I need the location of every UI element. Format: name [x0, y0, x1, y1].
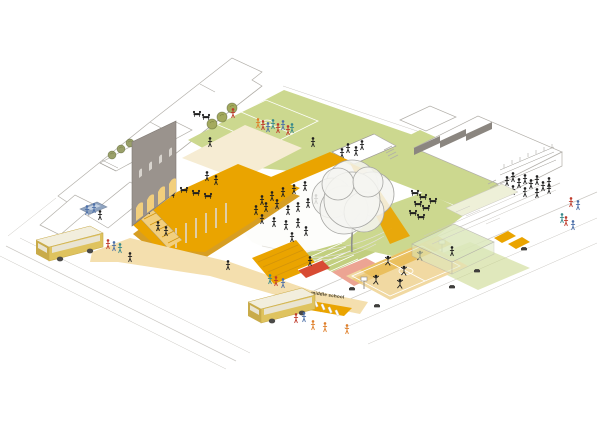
shrub-icon — [227, 103, 237, 113]
site-plan-svg: middle school — [0, 0, 600, 426]
bus2-wheel-front — [269, 319, 275, 324]
person-icon — [345, 324, 348, 334]
shrub-icon — [217, 112, 227, 122]
axonometric-site-illustration: middle school — [0, 0, 600, 426]
person-icon — [529, 179, 532, 189]
school-bus-2 — [248, 288, 315, 323]
person-icon — [547, 184, 550, 194]
amber-patch-1 — [494, 231, 516, 243]
bench-icon — [449, 285, 455, 288]
person-icon — [541, 181, 544, 191]
person-icon — [564, 216, 567, 226]
upper-annex-building — [400, 106, 456, 131]
bench-icon — [521, 247, 527, 250]
person-icon — [311, 320, 314, 330]
shrub-icon — [207, 119, 217, 129]
shrub-icon — [108, 151, 116, 159]
person-icon — [294, 313, 297, 323]
bus1-wheel-rear — [87, 249, 93, 254]
bench-icon — [374, 304, 380, 307]
person-icon — [569, 197, 572, 207]
person-icon — [576, 200, 579, 210]
person-icon — [560, 213, 563, 223]
person-icon — [302, 312, 305, 322]
person-icon — [535, 175, 538, 185]
amber-patch-2 — [508, 237, 530, 249]
person-icon — [323, 322, 326, 332]
bench-icon — [349, 287, 355, 290]
bus1-wheel-front — [57, 257, 63, 262]
shrub-icon — [117, 145, 125, 153]
